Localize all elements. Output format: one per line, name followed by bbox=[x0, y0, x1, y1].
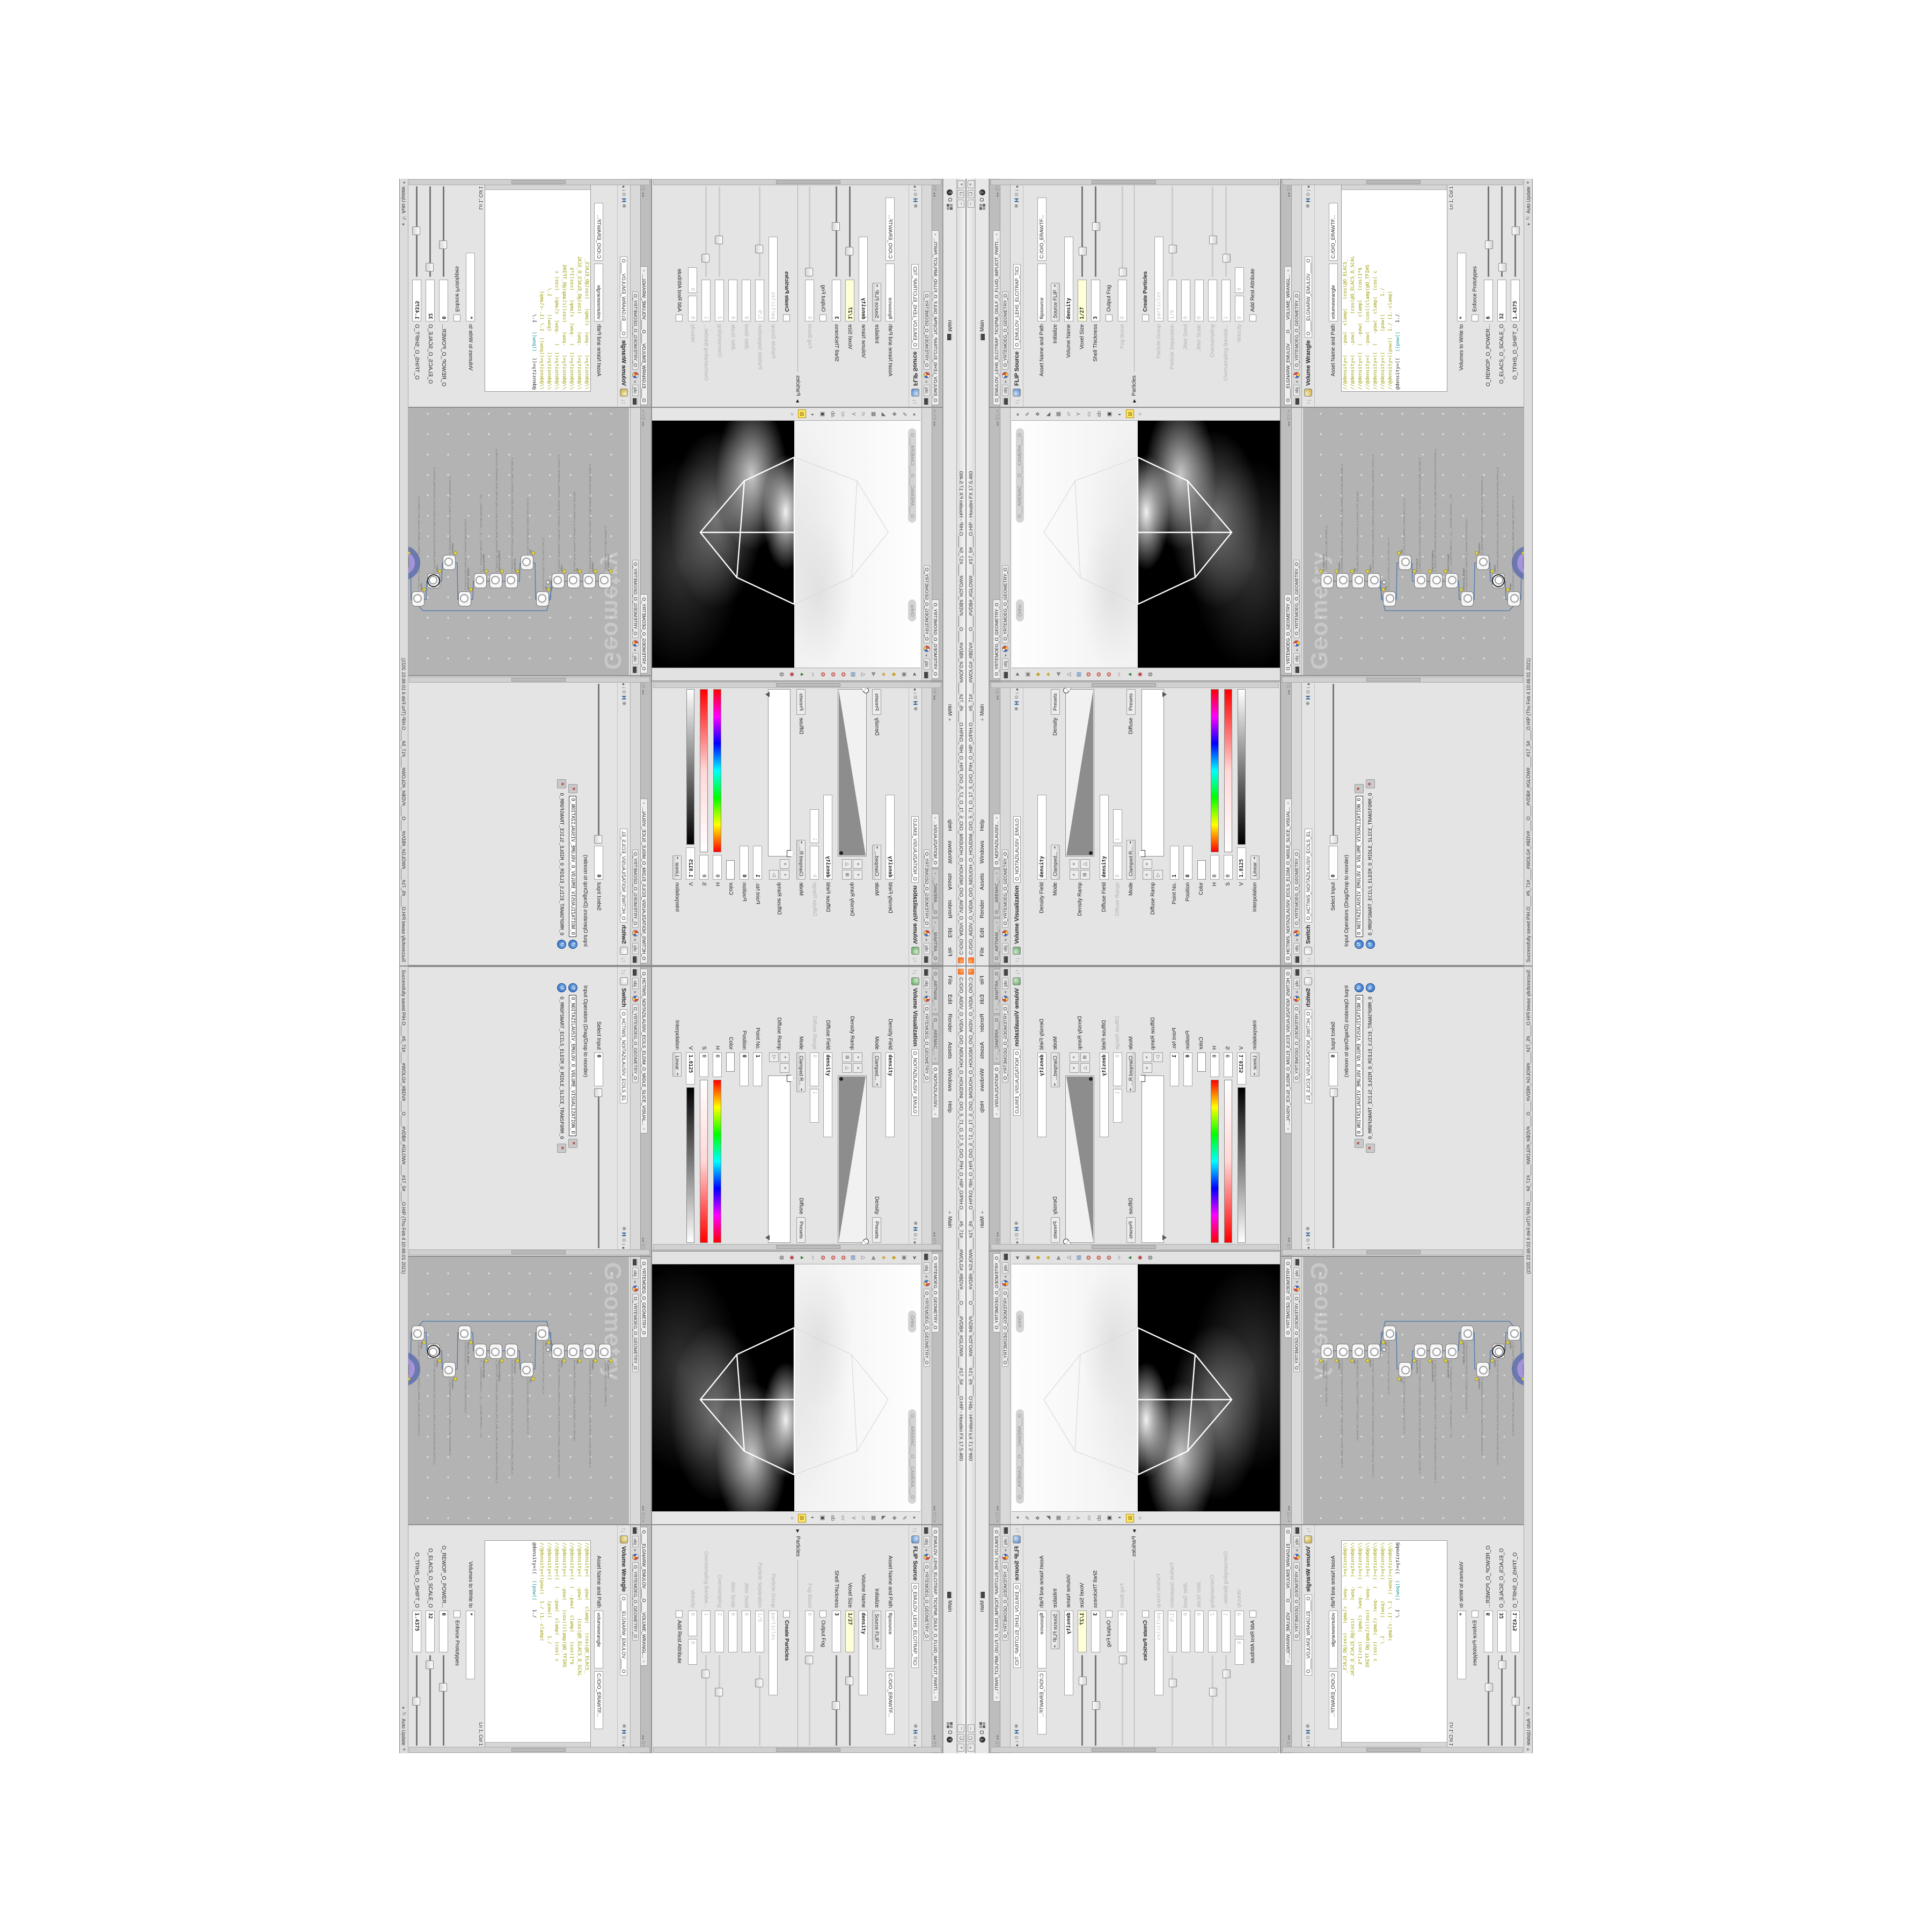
vex-code-editor[interactable]: //@density=( -pow( clamp( (cos(@O_ELACS_… bbox=[485, 1540, 591, 1748]
pane-tab[interactable]: O_YRTEMOEG_O_GEOMETRY_O bbox=[932, 1253, 939, 1333]
slider-track[interactable] bbox=[705, 1655, 707, 1746]
remove-button[interactable] bbox=[1366, 779, 1375, 788]
param-field[interactable]: 1.4375 bbox=[1511, 1611, 1520, 1652]
param-field[interactable]: 0 bbox=[1235, 267, 1244, 293]
param-field[interactable]: 0 bbox=[699, 855, 708, 880]
pane-control-icon[interactable]: ◂ bbox=[1286, 1505, 1291, 1507]
scrollbar[interactable] bbox=[991, 682, 1279, 688]
checkbox[interactable] bbox=[1142, 314, 1149, 321]
network-node[interactable] bbox=[1476, 1362, 1489, 1377]
path-node[interactable]: O_YRTEMOEG_O_GEOMETRY_O bbox=[1002, 291, 1008, 370]
pane-control-icon[interactable]: ▸ bbox=[1286, 690, 1291, 692]
toolbar-icon[interactable]: ❂ bbox=[818, 1254, 826, 1262]
toolbar-icon[interactable]: ❖ bbox=[1034, 410, 1042, 419]
minimize-button[interactable]: – bbox=[968, 1724, 975, 1732]
pane-control-icon[interactable]: ▸ bbox=[641, 421, 646, 423]
prev-next-node-buttons[interactable]: ↑↓ bbox=[912, 1527, 919, 1533]
network-node[interactable] bbox=[443, 1362, 456, 1377]
toolbar-icon[interactable]: ✎ bbox=[900, 1514, 908, 1523]
node-name-field[interactable]: O____ELGNARW_EMULOV____O bbox=[620, 257, 628, 337]
param-field[interactable]: 6 bbox=[439, 1611, 448, 1652]
density-ramp-widget[interactable] bbox=[1065, 1075, 1094, 1243]
toolbar-icon[interactable]: ◀ bbox=[869, 1254, 877, 1262]
delete-point-button[interactable]: × bbox=[1070, 859, 1079, 869]
header-icon[interactable]: H bbox=[1014, 1227, 1020, 1231]
slider-track[interactable] bbox=[1081, 1655, 1083, 1746]
pane-control-icon[interactable]: ▽ bbox=[1286, 1243, 1291, 1247]
network-node[interactable] bbox=[1507, 591, 1520, 606]
slider-track[interactable] bbox=[759, 1655, 760, 1746]
slider-track[interactable] bbox=[1172, 1655, 1173, 1746]
header-icon[interactable]: ✻ bbox=[621, 1724, 627, 1729]
close-icon[interactable]: × bbox=[641, 269, 646, 272]
checkbox[interactable] bbox=[1472, 314, 1479, 321]
param-field[interactable]: density bbox=[1037, 1052, 1046, 1137]
param-menu[interactable]: Linear bbox=[672, 855, 682, 880]
path-node[interactable]: O_YRTEMOEG_O_GEOMETRY_O bbox=[632, 850, 639, 928]
close-icon[interactable]: × bbox=[933, 872, 938, 875]
header-icon[interactable]: i bbox=[1306, 1244, 1311, 1245]
close-icon[interactable]: × bbox=[933, 921, 938, 924]
header-icon[interactable]: ⊙ bbox=[912, 1736, 918, 1740]
toolbar-icon[interactable]: ▸ bbox=[1014, 410, 1022, 419]
density-ramp-widget[interactable] bbox=[838, 689, 867, 857]
node-flag[interactable] bbox=[422, 588, 426, 591]
slider-track[interactable] bbox=[1333, 684, 1334, 843]
network-node[interactable] bbox=[1383, 591, 1396, 606]
header-icon[interactable]: H bbox=[621, 1730, 627, 1734]
pane-tab[interactable]: O_NOITAZILAUSIV...× bbox=[993, 814, 1000, 868]
param-field[interactable]: 0 bbox=[1329, 1052, 1338, 1086]
header-icon[interactable]: ● bbox=[1306, 683, 1311, 685]
pane-control-icon[interactable]: □ bbox=[995, 413, 1000, 416]
param-field[interactable]: 0 bbox=[1235, 296, 1244, 321]
param-field[interactable]: 2 bbox=[1208, 280, 1217, 321]
param-field[interactable]: 1 bbox=[810, 1089, 819, 1123]
path-root[interactable]: obj bbox=[1293, 978, 1300, 989]
toolbar-icon[interactable]: ▸ bbox=[1014, 1514, 1022, 1523]
pane-tab[interactable]: O_YRTEMOEG_O_GEOMETRY_O bbox=[932, 599, 939, 679]
pane-control-icon[interactable]: ◂ bbox=[932, 195, 937, 197]
toolbar-icon[interactable]: Y bbox=[849, 1514, 857, 1523]
minimize-button[interactable]: – bbox=[958, 1724, 965, 1732]
network-node[interactable] bbox=[489, 573, 502, 588]
pane-control-icon[interactable]: ▽ bbox=[641, 417, 646, 420]
toolbar-icon[interactable]: ab bbox=[829, 410, 837, 419]
header-icon[interactable]: i bbox=[1014, 189, 1020, 191]
param-field[interactable]: volumewrangle bbox=[1329, 264, 1338, 321]
pane-tab[interactable]: O_YRTEMOEG_O_GEOMETRY_O bbox=[1284, 594, 1291, 674]
header-icon[interactable]: i bbox=[1306, 189, 1311, 191]
toolbar-icon[interactable]: ◍ bbox=[1146, 1254, 1154, 1262]
toolbar-icon[interactable]: ▣ bbox=[1106, 410, 1114, 419]
operator-item[interactable]: O_NOITAZILAUSIV_EMULOV_O_VOLUME_VISUALIZ… bbox=[569, 995, 577, 1136]
close-icon[interactable]: × bbox=[1286, 1128, 1291, 1130]
network-node[interactable] bbox=[443, 555, 456, 570]
slider-handle[interactable] bbox=[1209, 1688, 1217, 1696]
reorder-icon[interactable]: ↺ bbox=[1355, 983, 1364, 992]
toolbar-icon[interactable]: ◣ bbox=[1044, 1514, 1052, 1523]
presets-button[interactable]: Presets bbox=[872, 689, 881, 715]
param-field[interactable]: 0 bbox=[728, 1611, 737, 1652]
param-field[interactable]: 1.8125 bbox=[1237, 847, 1246, 880]
toolbar-icon[interactable]: ✎ bbox=[1024, 1514, 1032, 1523]
ramp-option-button[interactable]: ▷ bbox=[769, 870, 779, 880]
toolbar-icon[interactable]: ▭ bbox=[1085, 1514, 1093, 1523]
pane-control-icon[interactable]: + bbox=[1286, 409, 1291, 412]
ramp-marker[interactable] bbox=[1162, 692, 1169, 697]
param-field[interactable]: 32 bbox=[426, 1611, 435, 1652]
node-flag[interactable] bbox=[500, 569, 504, 573]
val-slider[interactable] bbox=[1238, 689, 1246, 845]
toolbar-icon[interactable]: ◐ bbox=[808, 410, 816, 419]
diffuse-ramp-widget[interactable] bbox=[1141, 1075, 1164, 1243]
menu-file[interactable]: File bbox=[979, 971, 985, 990]
restore-button[interactable]: ❏ bbox=[968, 1734, 975, 1742]
slider-handle[interactable] bbox=[1079, 247, 1087, 255]
toolbar-icon[interactable]: ▣ bbox=[900, 1254, 908, 1262]
header-icon[interactable]: ✻ bbox=[1305, 701, 1311, 706]
operator-item[interactable]: O_NOITAZILAUSIV_EMULOV_O_VOLUME_VISUALIZ… bbox=[1356, 995, 1363, 1136]
remove-button[interactable] bbox=[568, 784, 577, 793]
header-icon[interactable]: i bbox=[1014, 1239, 1020, 1240]
toolbar-icon[interactable]: △ bbox=[1065, 1254, 1073, 1262]
param-field[interactable]: 0 bbox=[688, 267, 697, 293]
prev-next-node-buttons[interactable]: ↑↓ bbox=[620, 957, 628, 963]
param-field[interactable]: density bbox=[1064, 237, 1073, 321]
param-menu[interactable]: Clamped... bbox=[872, 1052, 881, 1087]
vex-code-editor[interactable]: //@density=( -pow( clamp( (cos(@O_ELACS_… bbox=[485, 184, 591, 392]
slider-handle[interactable] bbox=[755, 245, 763, 253]
section-fold-icon[interactable]: ▶ bbox=[796, 1529, 801, 1533]
close-icon[interactable]: × bbox=[933, 1057, 938, 1060]
pane-control-icon[interactable]: + bbox=[995, 409, 1000, 412]
network-node[interactable] bbox=[552, 573, 565, 588]
pane-tab[interactable]: O___AREMAC_...× bbox=[932, 1015, 939, 1063]
header-icon[interactable]: H bbox=[1014, 701, 1020, 705]
ramp-option-button[interactable]: △ bbox=[842, 1063, 852, 1073]
header-icon[interactable]: ● bbox=[1014, 185, 1020, 188]
param-field[interactable]: C:/O/O_ERAWTF... bbox=[1329, 203, 1338, 261]
param-field[interactable]: 0 bbox=[1235, 1611, 1244, 1636]
menu-help[interactable]: Help bbox=[979, 815, 985, 836]
network-node[interactable] bbox=[1414, 1344, 1427, 1359]
pane-control-icon[interactable]: ▸ bbox=[995, 192, 1000, 194]
path-node[interactable]: O_YRTEMOEG_O_GEOMETRY_O bbox=[1002, 1562, 1008, 1641]
network-node[interactable] bbox=[474, 573, 487, 588]
pane-control-icon[interactable]: ▸ bbox=[932, 1738, 937, 1740]
checkbox[interactable] bbox=[453, 1611, 460, 1618]
param-field[interactable]: flipsource bbox=[885, 264, 895, 321]
pane-control-icon[interactable]: ▽ bbox=[932, 417, 937, 420]
scrollbar[interactable] bbox=[653, 682, 941, 688]
reorder-icon[interactable]: ↺ bbox=[557, 940, 566, 949]
toolbar-icon[interactable]: △ bbox=[859, 670, 867, 679]
prev-next-node-buttons[interactable]: ↑↓ bbox=[912, 957, 919, 963]
pane-control-icon[interactable]: ◂ bbox=[995, 195, 1000, 197]
param-field[interactable]: 0 bbox=[1210, 855, 1219, 880]
scrollbar[interactable] bbox=[653, 1244, 941, 1250]
param-field[interactable]: 1/27 bbox=[845, 280, 854, 321]
close-icon[interactable]: × bbox=[1286, 1660, 1291, 1663]
scrollbar[interactable] bbox=[653, 1747, 941, 1753]
slider-track[interactable] bbox=[429, 1655, 431, 1746]
auto-update-selector[interactable]: Auto Update bbox=[1526, 1718, 1531, 1745]
slider-track[interactable] bbox=[416, 186, 418, 277]
path-root[interactable]: obj bbox=[1293, 1268, 1300, 1279]
param-field[interactable]: 6 bbox=[1484, 1611, 1493, 1652]
add-point-button[interactable]: + bbox=[1070, 870, 1079, 880]
presets-button[interactable]: Presets bbox=[1051, 1217, 1060, 1243]
close-icon[interactable]: × bbox=[933, 1008, 938, 1011]
toolbar-icon[interactable]: ❂ bbox=[1085, 670, 1093, 679]
ramp-option-button[interactable]: ⊞ bbox=[1080, 1052, 1090, 1062]
param-field[interactable]: 1.4375 bbox=[412, 1611, 421, 1652]
node-flag[interactable] bbox=[516, 569, 519, 573]
header-icon[interactable]: ⊙ bbox=[621, 192, 627, 196]
presets-button[interactable]: Presets bbox=[872, 1217, 881, 1243]
scrollbar[interactable] bbox=[991, 1747, 1279, 1753]
pane-control-icon[interactable]: □ bbox=[995, 1516, 1000, 1519]
path-root[interactable]: obj bbox=[632, 943, 639, 954]
presets-button[interactable]: Presets bbox=[796, 689, 806, 715]
ramp-option-button[interactable]: △ bbox=[1080, 1063, 1090, 1073]
close-button[interactable]: × bbox=[968, 1744, 975, 1752]
pane-tab[interactable]: O_HCTIWS_NOITAZILAUSIV_ECILS_ELDIM_O_MID… bbox=[641, 799, 648, 963]
toolbar-icon[interactable]: ❖ bbox=[890, 410, 898, 419]
scrollbar[interactable] bbox=[409, 677, 650, 683]
param-field[interactable]: C:/O/O_ERAWTF... bbox=[594, 203, 603, 261]
node-name-field[interactable]: O_EMULOV_LEHS_ELCITRAP_TICI bbox=[912, 264, 919, 349]
node-flag[interactable] bbox=[594, 569, 597, 573]
val-slider[interactable] bbox=[686, 689, 694, 845]
menu-render[interactable]: Render bbox=[979, 1009, 985, 1037]
slider-handle[interactable] bbox=[1498, 1660, 1506, 1669]
network-canvas[interactable]: Geometry ae_CubeSphereO_ERHPS_ENUC_O_CUB… bbox=[1303, 408, 1524, 675]
node-name-field[interactable]: O_NOITAZILAUSIV_EMULO bbox=[1013, 1049, 1021, 1116]
header-icon[interactable]: ✻ bbox=[912, 1221, 918, 1226]
code-scrollbar[interactable] bbox=[485, 185, 590, 190]
vex-code-editor[interactable]: //@density=( -pow( clamp( (cos(@O_ELACS_… bbox=[1341, 184, 1447, 392]
toolbar-icon[interactable]: ▲ bbox=[798, 670, 806, 679]
network-node[interactable] bbox=[412, 591, 425, 606]
reorder-icon[interactable]: ↺ bbox=[557, 983, 566, 992]
toolbar-icon[interactable]: ✂ bbox=[1116, 1254, 1124, 1262]
pane-control-icon[interactable]: ▽ bbox=[932, 1741, 937, 1744]
slider-handle[interactable] bbox=[1209, 236, 1217, 244]
toolbar-icon[interactable]: Y bbox=[849, 410, 857, 419]
param-field[interactable]: 0 bbox=[688, 296, 697, 321]
toolbar-icon[interactable]: ab bbox=[1095, 410, 1103, 419]
slider-handle[interactable] bbox=[1223, 1670, 1231, 1678]
param-field[interactable]: 0 bbox=[805, 1611, 814, 1652]
param-field[interactable]: 1/27 bbox=[845, 1611, 854, 1652]
param-field[interactable]: particles bbox=[1154, 1611, 1163, 1695]
pane-control-icon[interactable]: ▽ bbox=[641, 1243, 646, 1247]
param-menu[interactable]: Source FLIP bbox=[872, 1611, 881, 1649]
path-node[interactable]: O_YRTEMOEG_O_GEOMETRY_O bbox=[924, 1562, 930, 1641]
pane-tab[interactable]: O____ELGNARW_EMULOV____O____VOLUME_WRANG… bbox=[1284, 266, 1291, 405]
param-field[interactable]: 0 bbox=[1224, 1052, 1233, 1077]
slider-track[interactable] bbox=[1081, 186, 1083, 277]
param-field[interactable]: 1/9 bbox=[755, 1611, 764, 1652]
slider-track[interactable] bbox=[598, 1089, 599, 1248]
ramp-option-button[interactable]: ▷ bbox=[769, 1052, 779, 1062]
camera-pill[interactable]: O___AREMAC___O___CAMERA___O bbox=[1016, 428, 1024, 523]
header-icon[interactable]: ✻ bbox=[912, 707, 918, 711]
slider-track[interactable] bbox=[1172, 186, 1173, 277]
param-field[interactable]: 3 bbox=[832, 280, 841, 321]
scrollbar[interactable] bbox=[991, 1244, 1279, 1250]
toolbar-icon[interactable]: ▭ bbox=[839, 1514, 847, 1523]
slider-track[interactable] bbox=[1122, 1655, 1123, 1746]
param-field[interactable]: 32 bbox=[1497, 280, 1506, 321]
node-flag[interactable] bbox=[609, 1359, 613, 1363]
toolbar-icon[interactable]: ❂ bbox=[1095, 670, 1103, 679]
slider-handle[interactable] bbox=[845, 1677, 853, 1685]
header-icon[interactable]: ✻ bbox=[1014, 204, 1020, 208]
param-menu[interactable]: Source FLIP bbox=[1051, 1611, 1060, 1649]
param-field[interactable]: 0 bbox=[742, 1611, 751, 1652]
node-name-field[interactable]: O____ELGNARW_EMULOV____O bbox=[1305, 257, 1312, 337]
network-node[interactable] bbox=[1352, 1344, 1365, 1359]
pane-tab[interactable]: O__ARTNAM_...× bbox=[993, 969, 1000, 1014]
hue-slider[interactable] bbox=[1211, 1080, 1219, 1243]
pane-tab[interactable]: O_EMULOV_LEHS_ELCITRAP_TICI(PMI_DIULF_O_… bbox=[932, 230, 939, 405]
path-root[interactable]: obj bbox=[1002, 1536, 1008, 1547]
pane-control-icon[interactable]: ▽ bbox=[995, 1238, 1000, 1241]
delete-point-button[interactable]: × bbox=[853, 1063, 862, 1073]
param-field[interactable]: 1 bbox=[753, 1052, 762, 1086]
slider-track[interactable] bbox=[1488, 186, 1489, 277]
network-node[interactable] bbox=[521, 555, 533, 570]
pane-tab[interactable]: O____ELGNARW_EMULOV____O____VOLUME_WRANG… bbox=[641, 266, 648, 405]
node-flag[interactable] bbox=[531, 551, 535, 555]
param-field[interactable]: 0 bbox=[1181, 1611, 1190, 1652]
ramp-option-button[interactable]: △ bbox=[842, 859, 852, 869]
header-icon[interactable]: ⊙ bbox=[1014, 1233, 1020, 1237]
pane-control-icon[interactable]: ▸ bbox=[995, 1509, 1000, 1511]
toolbar-icon[interactable]: ○ bbox=[788, 1514, 796, 1523]
param-field[interactable]: particles bbox=[1154, 237, 1163, 321]
color-swatch[interactable] bbox=[1197, 860, 1206, 880]
checkbox[interactable] bbox=[453, 314, 460, 321]
network-node[interactable] bbox=[412, 1326, 425, 1341]
remove-button[interactable] bbox=[1355, 784, 1364, 793]
delete-point-button[interactable]: × bbox=[780, 859, 789, 869]
operator-item[interactable]: O_MROFSNART_ECILS_ELDIM_O_MIDLE_SLICE_TR… bbox=[1367, 791, 1374, 937]
close-icon[interactable]: × bbox=[994, 872, 999, 875]
menu-edit[interactable]: Edit bbox=[979, 990, 985, 1009]
slider-handle[interactable] bbox=[805, 1656, 813, 1664]
pane-control-icon[interactable]: ▽ bbox=[1286, 1741, 1291, 1744]
toolbar-icon[interactable]: ◀ bbox=[1055, 1254, 1063, 1262]
slider-handle[interactable] bbox=[1092, 1701, 1100, 1710]
ramp-marker[interactable] bbox=[763, 692, 770, 697]
toolbar-icon[interactable]: ◍ bbox=[1146, 670, 1154, 679]
desktop-selector-2[interactable]: Main bbox=[943, 320, 956, 340]
pane-control-icon[interactable]: ◂ bbox=[932, 698, 937, 700]
menu-help[interactable]: Help bbox=[947, 815, 953, 836]
add-point-button[interactable]: + bbox=[853, 870, 862, 880]
pane-control-icon[interactable]: ◂ bbox=[995, 1505, 1000, 1507]
header-icon[interactable]: ✻ bbox=[1014, 1221, 1020, 1226]
param-menu[interactable]: Clamped R... bbox=[796, 840, 806, 880]
remove-button[interactable] bbox=[1355, 1139, 1364, 1148]
add-point-button[interactable]: + bbox=[780, 1052, 789, 1062]
param-field[interactable]: 0 bbox=[713, 1052, 722, 1077]
prev-next-node-buttons[interactable]: ↑↓ bbox=[1305, 1527, 1312, 1533]
slider-handle[interactable] bbox=[832, 222, 840, 231]
header-icon[interactable]: ✻ bbox=[912, 1724, 918, 1729]
ramp-handle[interactable] bbox=[839, 851, 843, 855]
pane-control-icon[interactable]: ▽ bbox=[1286, 188, 1291, 191]
header-icon[interactable]: H bbox=[621, 696, 627, 700]
pane-control-icon[interactable]: + bbox=[995, 1520, 1000, 1523]
node-flag[interactable] bbox=[500, 1359, 504, 1363]
toolbar-icon[interactable]: ▣ bbox=[1024, 670, 1032, 679]
path-node[interactable]: O_YRTEMOEG_O_GEOMETRY_O bbox=[924, 850, 930, 928]
header-icon[interactable]: ✻ bbox=[621, 204, 627, 208]
path-root[interactable]: obj bbox=[1002, 943, 1008, 954]
param-field[interactable]: flipsource bbox=[1037, 1611, 1046, 1668]
slider-handle[interactable] bbox=[805, 268, 813, 276]
pane-tab[interactable]: O_YRTEMOEG_O_GEOMETRY_O bbox=[993, 599, 1000, 679]
path-root[interactable]: obj bbox=[924, 385, 930, 396]
toolbar-icon[interactable]: ◍ bbox=[778, 1254, 786, 1262]
param-field[interactable]: 0 bbox=[594, 846, 603, 880]
ramp-marker[interactable] bbox=[1138, 1075, 1145, 1082]
menu-assets[interactable]: Assets bbox=[947, 1037, 953, 1064]
toolbar-icon[interactable]: ❖ bbox=[1034, 1514, 1042, 1523]
menu-render[interactable]: Render bbox=[979, 895, 985, 923]
pane-control-icon[interactable]: ▸ bbox=[932, 421, 937, 423]
toolbar-icon[interactable]: ▲ bbox=[1126, 1254, 1134, 1262]
pane-control-icon[interactable]: ◂ bbox=[641, 1237, 646, 1239]
toolbar-icon[interactable]: ◐ bbox=[808, 1514, 816, 1523]
network-node[interactable] bbox=[505, 1344, 518, 1359]
scrollbar[interactable] bbox=[1282, 179, 1523, 185]
toolbar-icon[interactable]: ▲ bbox=[1126, 670, 1134, 679]
slider-handle[interactable] bbox=[1512, 1697, 1520, 1706]
pane-control-icon[interactable]: ◂ bbox=[1286, 1735, 1291, 1737]
slider-track[interactable] bbox=[1333, 1089, 1334, 1248]
param-field[interactable]: density bbox=[1100, 795, 1109, 880]
header-icon[interactable]: H bbox=[621, 1232, 627, 1236]
ramp-marker[interactable] bbox=[787, 1075, 794, 1082]
network-node[interactable] bbox=[1492, 1344, 1505, 1359]
toolbar-icon[interactable]: ▱ bbox=[1065, 410, 1073, 419]
section-fold-icon[interactable]: ▶ bbox=[1132, 399, 1137, 402]
ramp-marker[interactable] bbox=[1162, 1235, 1169, 1240]
pane-tab[interactable]: O__ARTNAM_...× bbox=[932, 918, 939, 963]
pane-control-icon[interactable]: ▸ bbox=[995, 421, 1000, 423]
pane-tab[interactable]: O_YRTEMOEG_O_GEOMETRY_O bbox=[641, 1258, 648, 1338]
network-node[interactable] bbox=[1430, 1344, 1443, 1359]
path-node[interactable]: O_YRTEMOEG_O_GEOMETRY_O bbox=[632, 291, 639, 370]
param-field[interactable]: 0 bbox=[728, 280, 737, 321]
param-field[interactable]: density bbox=[1064, 1611, 1073, 1695]
scrollbar[interactable] bbox=[409, 1249, 650, 1255]
camera-pill[interactable]: O___AREMAC___O___CAMERA___O bbox=[908, 428, 916, 523]
param-menu[interactable]: Clamped R... bbox=[1126, 840, 1136, 880]
pane-control-icon[interactable]: ▽ bbox=[1286, 1512, 1291, 1515]
slider-track[interactable] bbox=[1501, 186, 1503, 277]
header-icon[interactable]: H bbox=[1014, 198, 1020, 202]
param-field[interactable]: 0 bbox=[1183, 846, 1192, 880]
pane-control-icon[interactable]: ◂ bbox=[641, 195, 646, 197]
node-flag[interactable] bbox=[578, 569, 582, 573]
